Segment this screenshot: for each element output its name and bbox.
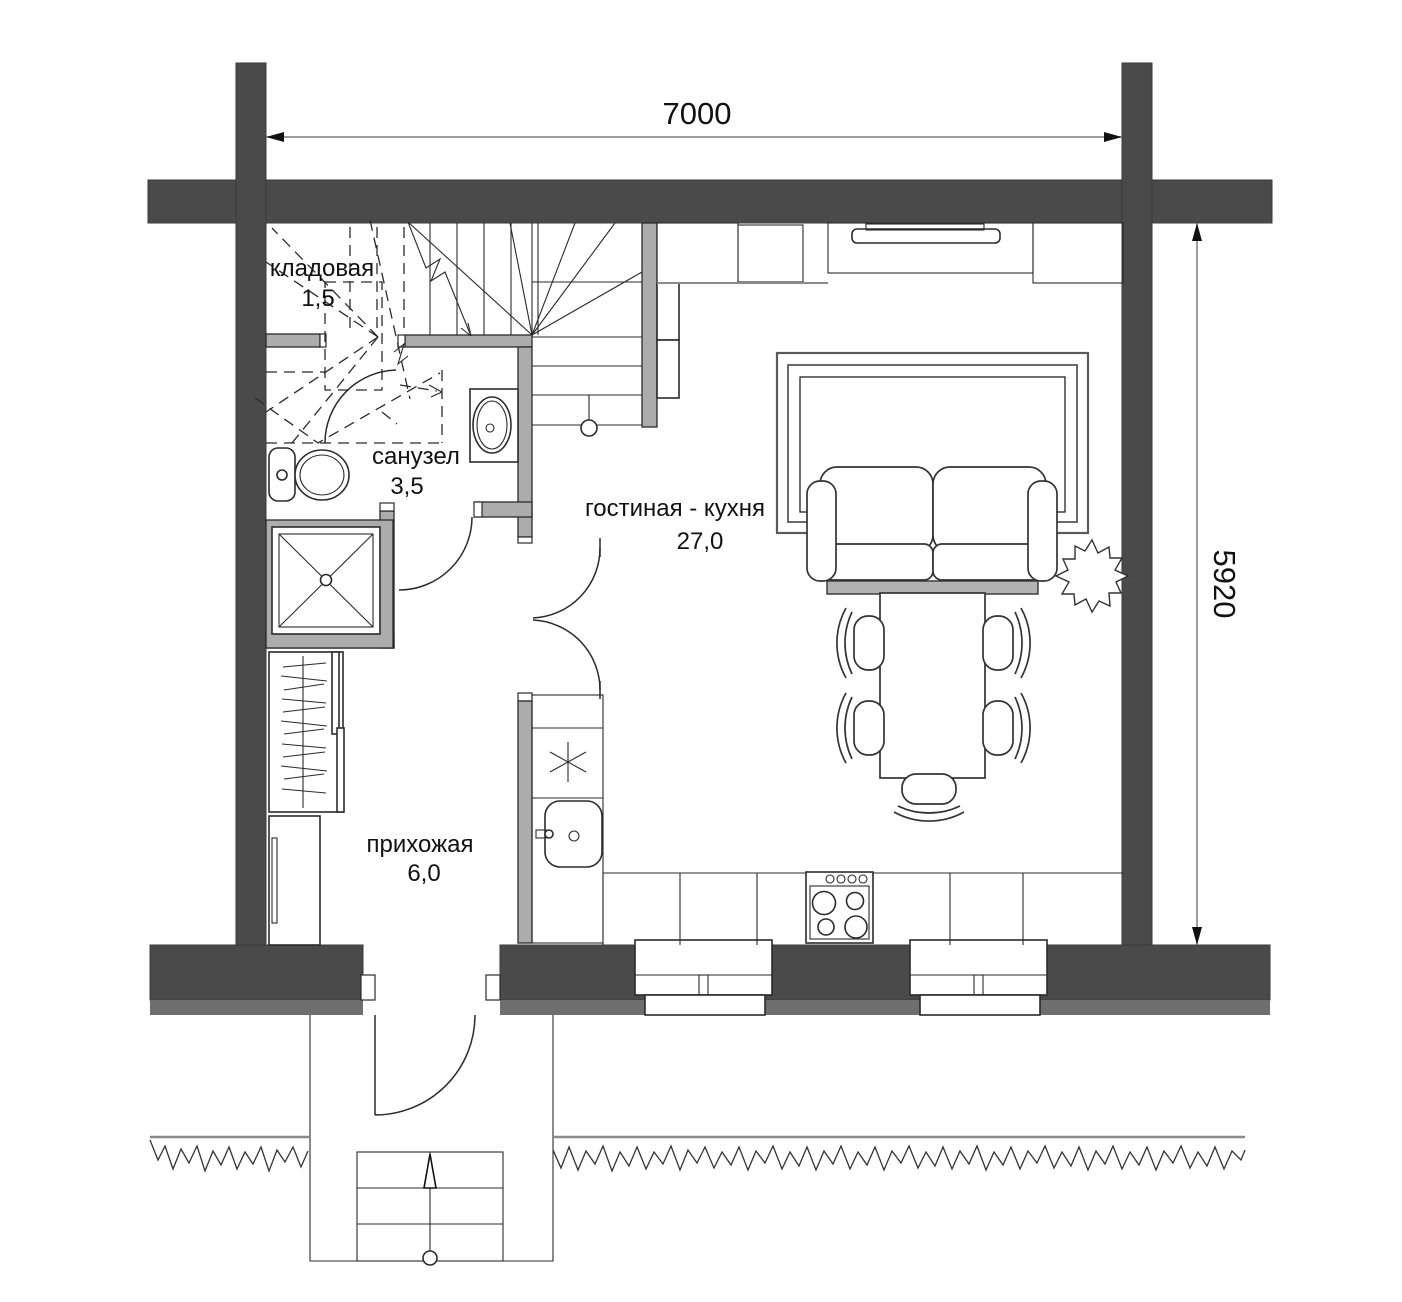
kitchen-counter-left (532, 695, 603, 943)
dining-table (880, 593, 985, 778)
dining-chair (983, 608, 1030, 678)
dimension-top: 7000 (266, 96, 1122, 142)
dining-chair (837, 608, 884, 678)
kitchen-counter-top (657, 223, 828, 283)
stair-wall (642, 223, 657, 427)
storage-door-arc (325, 370, 396, 443)
stair-newel-post (581, 420, 597, 436)
label-living-kitchen: гостиная - кухня (585, 495, 765, 522)
label-hallway: прихожая (367, 831, 474, 858)
window-right (910, 940, 1047, 1015)
wardrobe-door-rail (337, 728, 344, 812)
grass (150, 1137, 1245, 1171)
toilet (269, 448, 349, 501)
wardrobe-door-rail (332, 652, 339, 734)
foundation-band-right (500, 1000, 1270, 1015)
label-hallway-area: 6,0 (407, 860, 440, 887)
living-room-door (533, 538, 600, 699)
dimension-right: 5920 (1192, 223, 1242, 945)
sofa (807, 467, 1057, 581)
wardrobe (269, 652, 344, 812)
stove (806, 872, 873, 943)
porch-steps (357, 1152, 503, 1265)
console-table (827, 581, 1038, 594)
plant (1056, 540, 1128, 612)
floor-plan-drawing: 7000 5920 кладовая 1,5 санузел 3,5 гости… (0, 0, 1402, 1302)
wall-cabinet (1033, 223, 1123, 283)
label-bathroom-area: 3,5 (390, 473, 423, 500)
appliance-symbol (550, 742, 586, 782)
tv-console (828, 223, 1033, 273)
porch (310, 1015, 553, 1265)
steps-up-arrow (424, 1154, 436, 1188)
label-storage: кладовая (270, 255, 374, 282)
dining-chair (837, 693, 884, 763)
label-storage-area: 1,5 (301, 285, 334, 312)
bathroom-door-arc (399, 517, 472, 590)
dining-chair (894, 774, 964, 821)
foundation-band-left (150, 1000, 363, 1015)
window-left (635, 940, 772, 1015)
label-living-kitchen-area: 27,0 (677, 528, 724, 555)
entry-door (361, 975, 500, 1115)
hallway-cabinet (269, 816, 320, 945)
kitchen-wall (518, 701, 532, 943)
stair-side-shelf (657, 340, 679, 398)
kitchen-sink (536, 801, 602, 867)
tv (852, 224, 1000, 243)
bathroom-sink (470, 389, 518, 462)
floor-plan-canvas: 7000 5920 кладовая 1,5 санузел 3,5 гости… (0, 0, 1402, 1302)
stair-side-shelf (657, 283, 679, 340)
label-bathroom: санузел (372, 443, 460, 470)
shower (266, 520, 393, 648)
dimension-right-value: 5920 (1207, 550, 1242, 619)
dimension-top-value: 7000 (663, 96, 732, 131)
dining-chair (983, 693, 1030, 763)
